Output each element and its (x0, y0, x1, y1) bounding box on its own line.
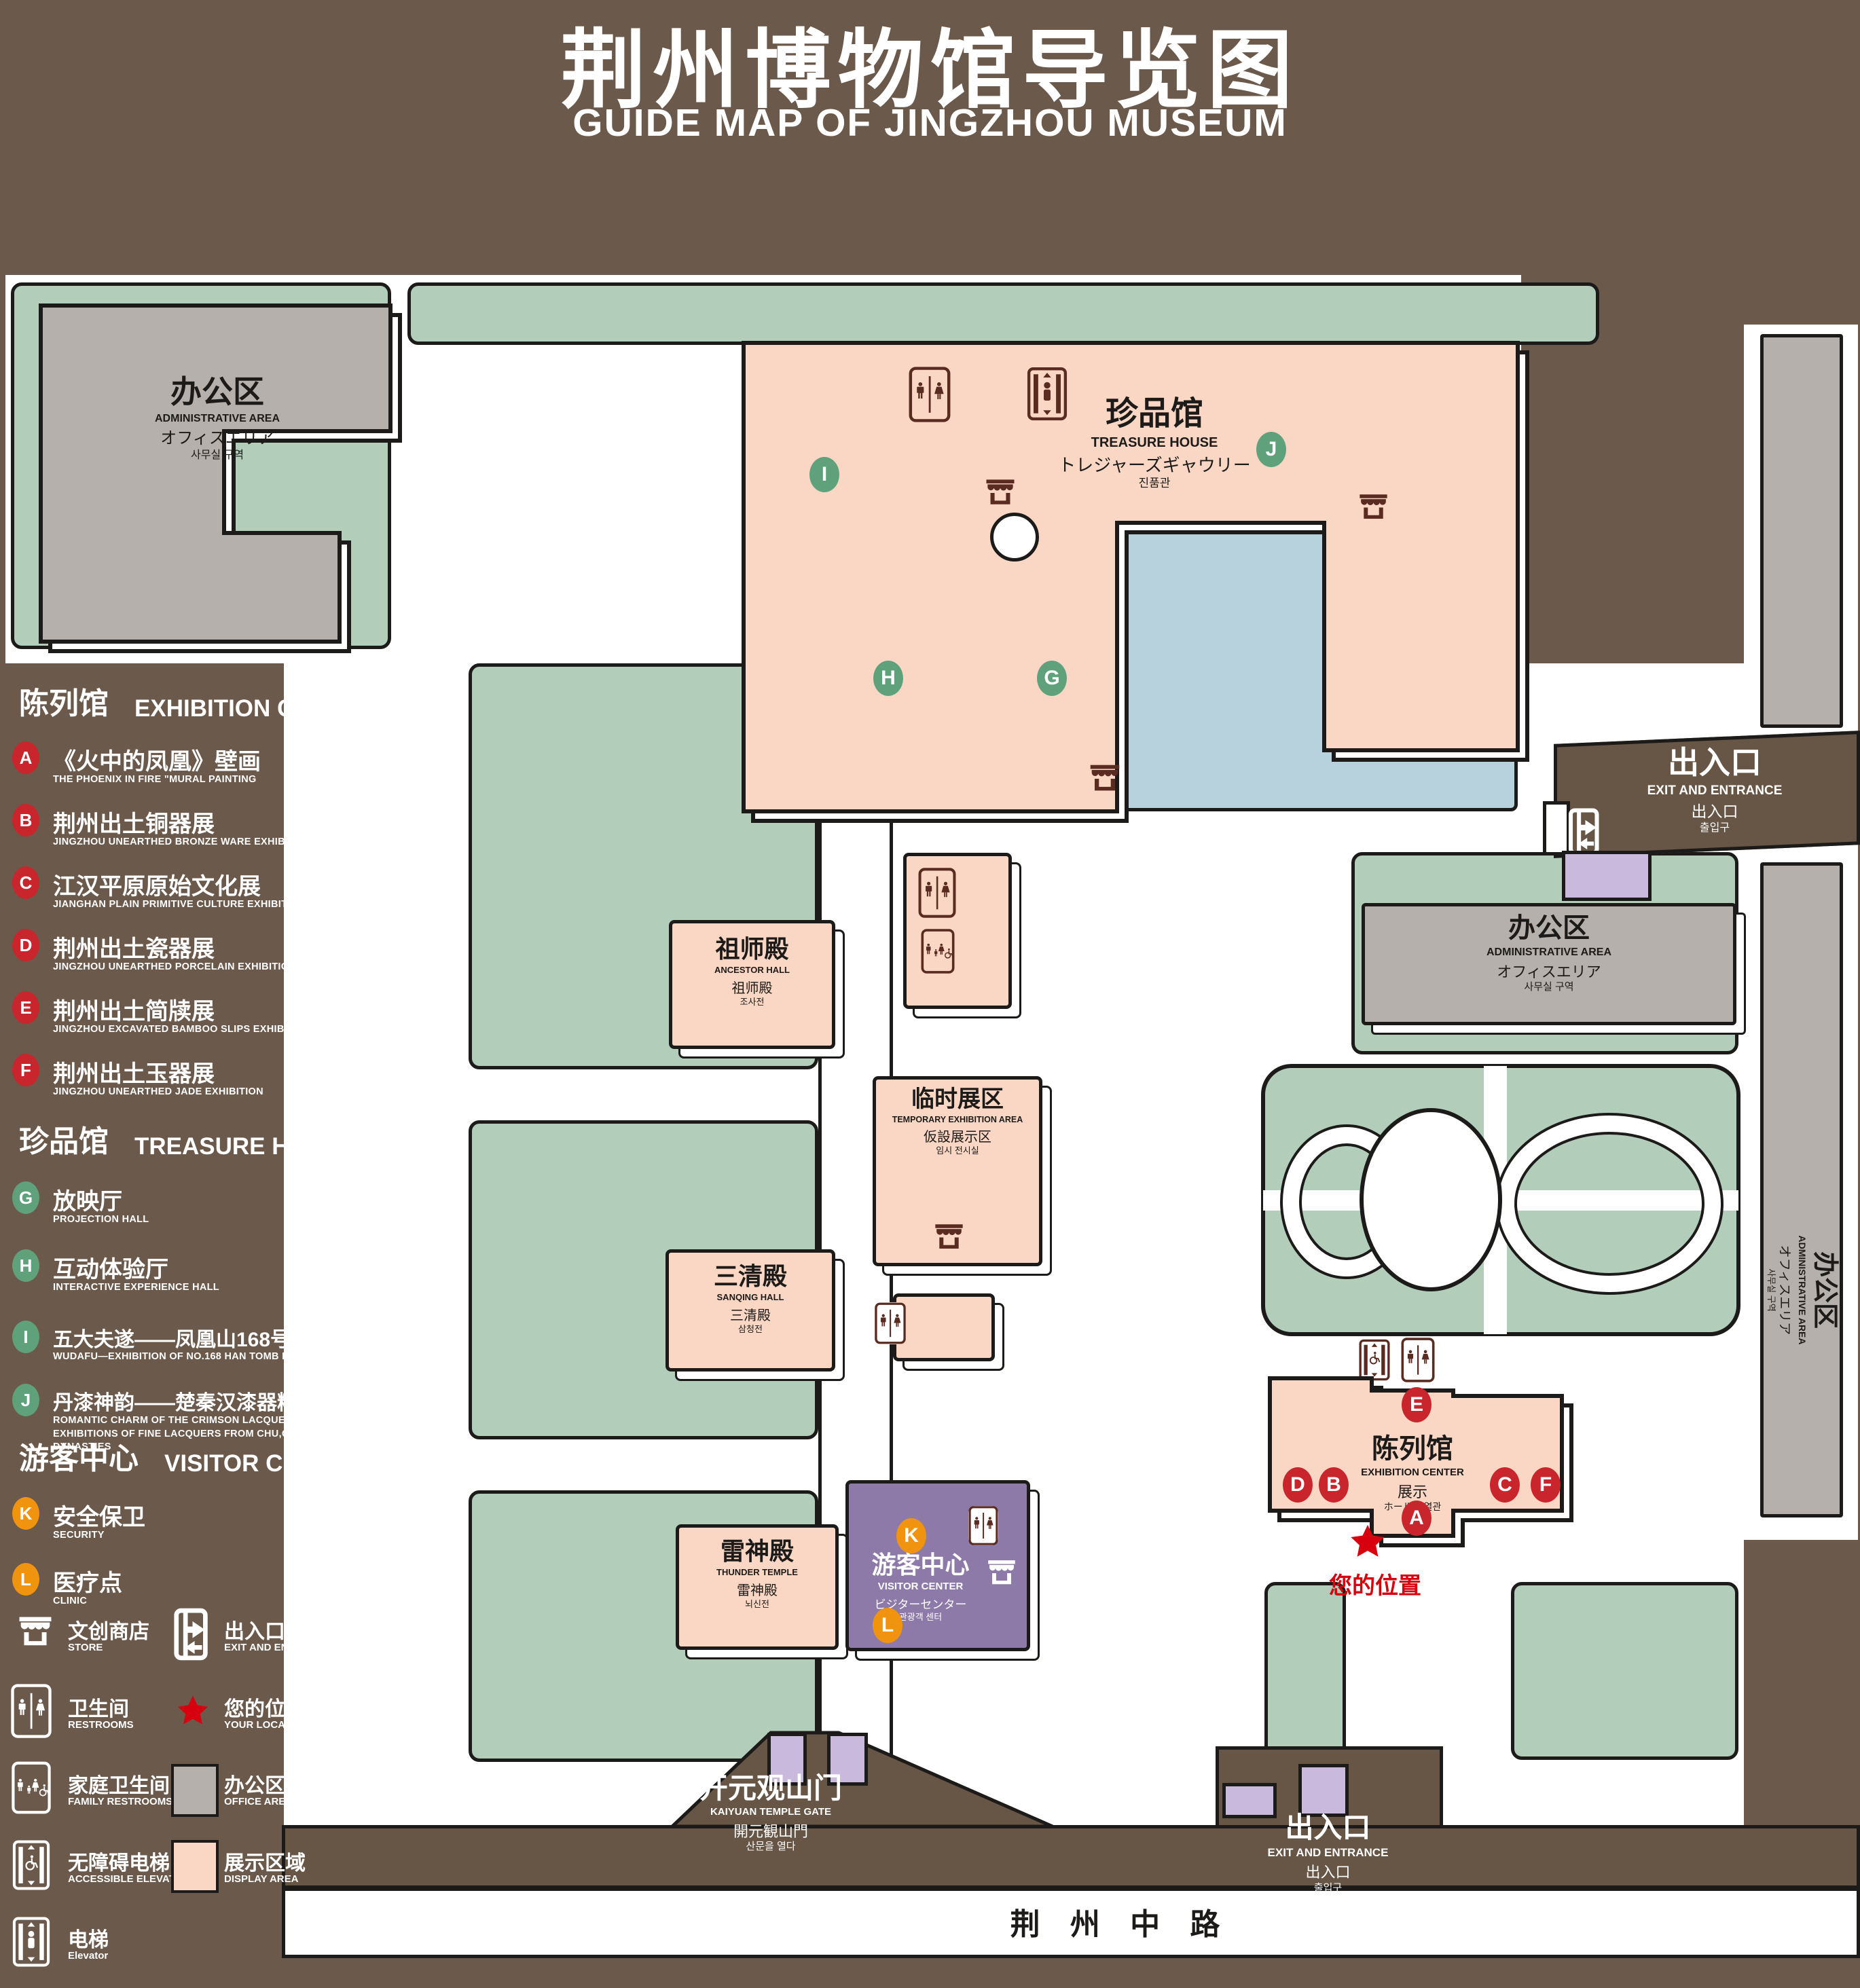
legend-item-floor: 1F (302, 1564, 377, 1594)
legend-item-subtitle: JIANGHAN PLAIN PRIMITIVE CULTURE EXHIBIT… (53, 899, 306, 910)
office-area-swatch (171, 1764, 219, 1817)
legend-item-subtitle: JINGZHOU UNEARTHED BRONZE WARE EXHIBITIO… (53, 836, 312, 847)
store-icon (1355, 489, 1392, 526)
elevator-icon (12, 1915, 50, 1969)
legend-item-subtitle: WUDAFU—EXHIBITION OF NO.168 HAN TOMB FRO… (53, 1351, 409, 1362)
legend-badge-J: J (12, 1384, 39, 1416)
kaiyuan-gate-label: 开元观山门 KAIYUAN TEMPLE GATE 開元観山門 산문을 열다 (676, 1772, 866, 1853)
store-icon (14, 1610, 57, 1654)
legend-symbol-sublabel: RESTROOMS (68, 1719, 134, 1731)
legend-item-floor: 1F (302, 1183, 377, 1212)
legend-symbol-label: 家庭卫生间 (68, 1769, 170, 1799)
map-marker-I: I (809, 457, 839, 492)
legend-symbol-label: 展示区域 (224, 1846, 306, 1876)
legend-item-floor: 1F (302, 1251, 377, 1280)
store-icon (1085, 759, 1125, 798)
restroom-icon (11, 1684, 52, 1738)
entrance-block-ne (1562, 851, 1652, 901)
legend-item-title: 放映厅 (53, 1183, 122, 1216)
courtyard-exhibition-south-west (1264, 1582, 1346, 1760)
legend-item-title: 荆州出土玉器展 (53, 1055, 215, 1088)
legend-item-floor: 1F (302, 868, 377, 897)
family-restroom-icon (12, 1761, 51, 1815)
map-marker-D: D (1283, 1467, 1313, 1503)
legend-symbol-sublabel: EXIT AND ENTRANCE (224, 1642, 331, 1653)
legend-badge-I: I (12, 1321, 39, 1353)
treasure-house-label: 珍品馆 TREASURE HOUSE トレジャーズギャウリー 진품관 (1032, 396, 1277, 490)
legend-item-title: 安全保卫 (53, 1498, 145, 1532)
map-marker-B: B (1319, 1467, 1349, 1503)
elevator-icon (1027, 367, 1068, 421)
legend-section-visitor-center: 游客中心VISITOR CENTER (19, 1434, 363, 1477)
page-subtitle: GUIDE MAP OF JINGZHOU MUSEUM (0, 100, 1860, 145)
legend-symbol-sublabel: Elevator (68, 1950, 108, 1962)
store-icon (983, 1555, 1020, 1591)
legend-symbol-sublabel: STORE (68, 1642, 103, 1653)
legend-symbol-label: 办公区域 (224, 1769, 306, 1799)
map-marker-C: C (1490, 1467, 1520, 1503)
admin-east-label: 办公区 ADMINISTRATIVE AREA オフィスエリア 사무실 구역 (1764, 1154, 1839, 1426)
map-marker-L: L (873, 1608, 902, 1643)
store-icon (930, 1219, 968, 1256)
legend-symbol-label: 您的位置 (224, 1692, 306, 1722)
legend-badge-G: G (12, 1181, 39, 1214)
temporary-exhibition-annex (893, 1293, 995, 1361)
legend-item-subtitle: JINGZHOU UNEARTHED PORCELAIN EXHIBITIONE (53, 961, 303, 972)
your-location-label: 您的位置 (1290, 1567, 1460, 1600)
map-marker-F: F (1531, 1467, 1561, 1503)
legend-item-floor: 1-2F (302, 1386, 377, 1415)
garden (1260, 1063, 1742, 1338)
legend-symbol-sublabel: YOUR LOCATION (224, 1719, 309, 1731)
courtyard-exhibition-south-east (1511, 1582, 1738, 1760)
legend-section-treasure-house: 珍品馆TREASURE HOUSE (19, 1117, 357, 1160)
admin-mid-label: 办公区 ADMINISTRATIVE AREA オフィスエリア 사무실 구역 (1362, 913, 1736, 993)
legend-item-floor: 1F (302, 805, 377, 834)
exit-ne-label: 出入口 EXIT AND ENTRANCE 出入口 출입구 (1603, 745, 1827, 834)
legend-item-title: 互动体验厅 (53, 1251, 168, 1284)
admin-east-strip-top (1760, 334, 1843, 728)
legend-badge-B: B (12, 804, 39, 836)
road-south-band (282, 1825, 1860, 1889)
exit-icon (171, 1605, 213, 1663)
legend-item-title: 荆州出土铜器展 (53, 805, 215, 839)
legend-badge-D: D (12, 929, 39, 961)
entrance-block-south (1298, 1764, 1349, 1817)
legend-badge-A: A (12, 741, 39, 774)
legend-symbol-label: 出入口 (224, 1615, 285, 1644)
legend-item-title: 荆州出土瓷器展 (53, 930, 215, 963)
thunder-temple-label: 雷神殿 THUNDER TEMPLE 雷神殿 뇌신전 (676, 1538, 839, 1610)
legend-item-subtitle: CLINIC (53, 1596, 87, 1606)
sanqing-hall-label: 三清殿 SANQING HALL 三清殿 삼청전 (665, 1263, 835, 1335)
legend-symbol-label: 电梯 (68, 1923, 109, 1953)
restroom-icon (875, 1302, 906, 1344)
legend-item-floor: 2F (302, 1055, 377, 1084)
legend-badge-C: C (12, 866, 39, 899)
visitor-center-label: 游客中心 VISITOR CENTER ビジターセンター 관광객 센터 (847, 1551, 993, 1623)
legend-item-subtitle: INTERACTIVE EXPERIENCE HALL (53, 1282, 219, 1293)
legend-item-subtitle: SECURITY (53, 1530, 105, 1541)
legend-item-subtitle: JINGZHOU EXCAVATED BAMBOO SLIPS EXHIBITI… (53, 1024, 312, 1035)
legend-item-floor: 2F (302, 1323, 377, 1352)
guide-map-page: 荆州博物馆导览图 GUIDE MAP OF JINGZHOU MUSEUM 出入… (0, 0, 1860, 1988)
treasure-house-vestibule (990, 513, 1039, 562)
accessible-elevator-icon (12, 1838, 50, 1892)
restroom-icon (909, 367, 951, 422)
legend-item-title: 《火中的凤凰》壁画 (53, 743, 261, 776)
road-label: 荆 州 中 路 (971, 1900, 1270, 1943)
legend-item-title: 江汉平原原始文化展 (53, 868, 261, 901)
legend-item-floor: 1F (302, 743, 377, 772)
map-marker-E: E (1402, 1387, 1432, 1422)
admin-northwest-label: 办公区 ADMINISTRATIVE AREA オフィスエリア 사무실 구역 (102, 375, 333, 462)
map-marker-G: G (1037, 661, 1067, 696)
display-area-swatch (171, 1840, 219, 1893)
legend-symbol-label: 文创商店 (68, 1615, 149, 1644)
legend-symbol-label: 卫生间 (68, 1692, 129, 1722)
map-marker-K: K (896, 1518, 926, 1553)
legend-item-subtitle: JINGZHOU UNEARTHED JADE EXHIBITION (53, 1086, 263, 1097)
ancestor-hall-label: 祖师殿 ANCESTOR HALL 祖师殿 조사전 (669, 936, 835, 1008)
map-marker-J: J (1256, 432, 1286, 467)
legend-symbol-sublabel: FAMILY RESTROOMS (68, 1796, 172, 1807)
legend-item-title: 医疗点 (53, 1564, 122, 1598)
legend-item-floor: 1F (302, 1498, 377, 1528)
legend-symbol-sublabel: OFFICE AREA (224, 1796, 293, 1807)
restroom-icon (918, 868, 956, 918)
legend-badge-E: E (12, 991, 39, 1024)
temporary-exhibition-label: 临时展区 TEMPORARY EXHIBITION AREA 仮設展示区 임시 … (869, 1086, 1046, 1156)
legend-section-exhibition-center: 陈列馆EXHIBITION CENTER (19, 679, 375, 722)
map-marker-A: A (1402, 1501, 1432, 1536)
legend-item-floor: 2F (302, 993, 377, 1022)
restroom-icon (968, 1506, 998, 1545)
admin-northwest-building (35, 300, 416, 663)
legend-badge-K: K (12, 1497, 39, 1530)
legend-item-subtitle: THE PHOENIX IN FIRE "MURAL PAINTING (53, 774, 257, 785)
family-restroom-icon (921, 929, 955, 974)
legend-item-title: 丹漆神韵——楚秦汉漆器精品展 (53, 1386, 338, 1416)
legend-symbol-label: 无障碍电梯 (68, 1846, 170, 1876)
legend-item-floor: 2F (302, 930, 377, 959)
store-icon (981, 474, 1019, 512)
legend-symbol-sublabel: DISPLAY AREA (224, 1873, 298, 1885)
map-marker-H: H (873, 661, 903, 696)
legend-item-title: 荆州出土简牍展 (53, 993, 215, 1026)
exit-south-label: 出入口 EXIT AND ENTRANCE 出入口 출입구 (1214, 1811, 1442, 1894)
location-star-icon (1348, 1522, 1387, 1562)
legend-badge-H: H (12, 1249, 39, 1282)
legend-item-subtitle: PROJECTION HALL (53, 1214, 149, 1225)
legend-badge-L: L (12, 1563, 39, 1596)
location-star-icon (175, 1693, 211, 1729)
legend-badge-F: F (12, 1054, 39, 1086)
